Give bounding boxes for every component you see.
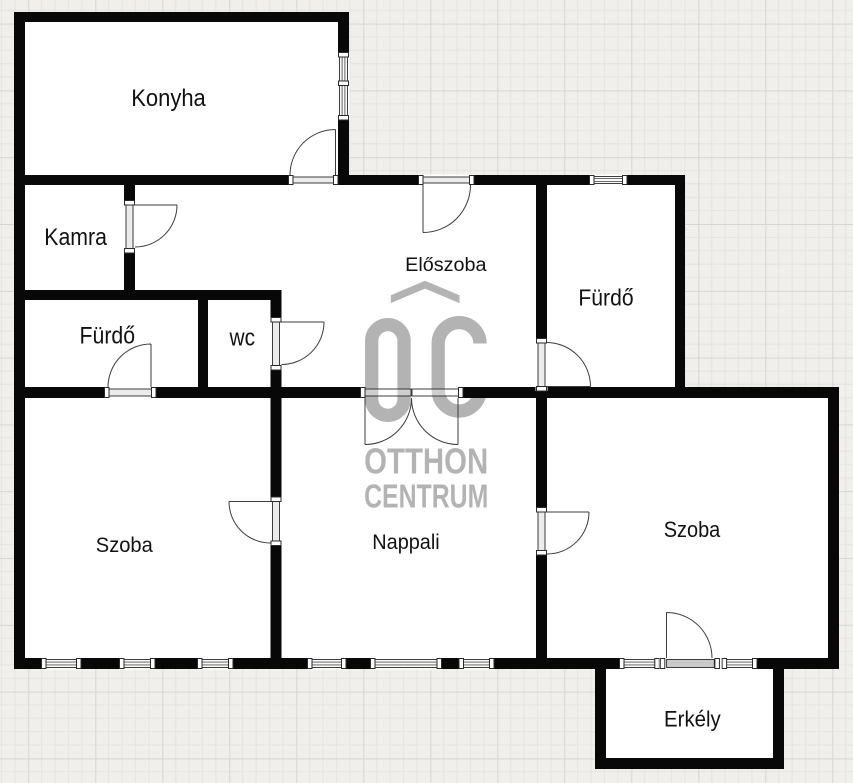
svg-text:Szoba: Szoba: [96, 534, 153, 557]
svg-text:CENTRUM: CENTRUM: [364, 478, 488, 515]
svg-text:Kamra: Kamra: [44, 224, 107, 251]
svg-text:Szoba: Szoba: [664, 517, 721, 542]
svg-text:Erkély: Erkély: [664, 707, 721, 732]
svg-text:OTTHON: OTTHON: [364, 442, 488, 482]
svg-text:wc: wc: [229, 325, 255, 352]
svg-text:Fürdő: Fürdő: [578, 285, 633, 311]
svg-text:Fürdő: Fürdő: [80, 322, 136, 349]
svg-text:Előszoba: Előszoba: [405, 255, 487, 276]
svg-text:Konyha: Konyha: [131, 85, 206, 112]
svg-text:Nappali: Nappali: [372, 531, 439, 554]
